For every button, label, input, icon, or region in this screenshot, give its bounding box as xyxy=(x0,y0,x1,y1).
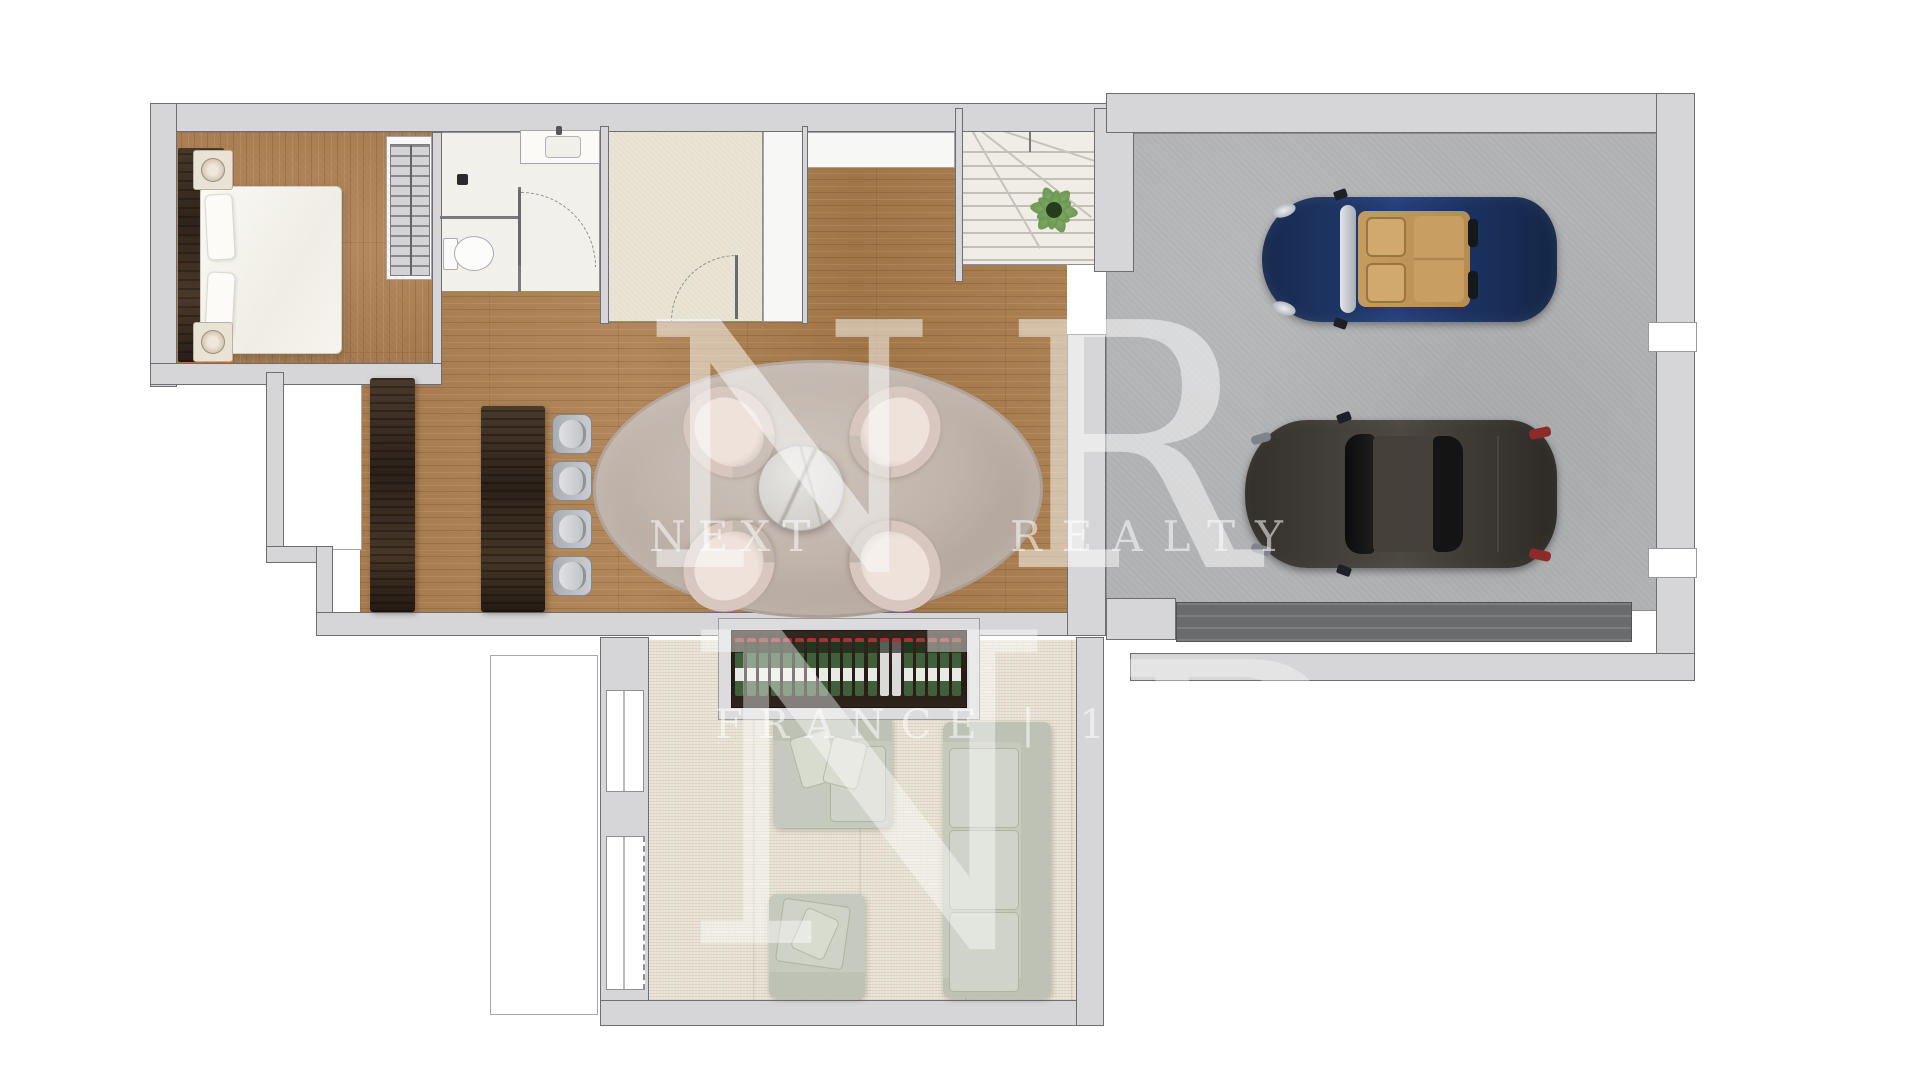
wine-bottle xyxy=(807,638,816,696)
armchair xyxy=(769,894,865,998)
wine-bottle xyxy=(759,638,768,696)
wall-left-upper xyxy=(150,103,177,387)
wall-hall-stairs xyxy=(955,108,963,282)
wall-main-bottom xyxy=(316,612,1107,636)
wine-bottle xyxy=(831,638,840,696)
terrace-bottom xyxy=(490,655,598,1015)
sofa-armrest xyxy=(943,722,1051,742)
wine-bottle xyxy=(952,638,961,696)
wine-bottle xyxy=(892,638,901,696)
sofa-back xyxy=(1021,722,1051,998)
wine-bottle xyxy=(735,638,744,696)
wine-bottle xyxy=(928,638,937,696)
convertible-car xyxy=(1262,197,1557,322)
wine-bottle xyxy=(916,638,925,696)
three-seat-sofa xyxy=(943,722,1051,998)
pillow xyxy=(204,193,235,260)
dining-table xyxy=(758,445,844,531)
roof xyxy=(1373,436,1435,552)
wine-bottle xyxy=(880,638,889,696)
wall-bath-dressing xyxy=(600,126,609,324)
living-window xyxy=(606,690,644,792)
garage-window-notch xyxy=(1648,548,1697,578)
roll-bar xyxy=(1468,219,1478,247)
sofa-seat-cushion xyxy=(949,912,1019,992)
garage-wall-bottom xyxy=(1130,653,1695,681)
open-cockpit xyxy=(1358,211,1470,307)
wine-bottle xyxy=(771,638,780,696)
garage-wall-top xyxy=(1106,93,1695,133)
windshield xyxy=(1340,205,1356,313)
bar-stool xyxy=(552,461,592,501)
sofa-seat-cushion xyxy=(949,748,1019,828)
garage-wall-stub xyxy=(1106,598,1176,640)
garage-window-notch xyxy=(1648,322,1697,352)
wine-bottle xyxy=(855,638,864,696)
wardrobe-rail xyxy=(390,144,430,276)
wine-bottle xyxy=(819,638,828,696)
bath-partition xyxy=(440,216,520,219)
wine-bottle xyxy=(940,638,949,696)
wall-right-lower xyxy=(1067,334,1106,636)
rear-bench xyxy=(1414,216,1464,302)
kitchen-island xyxy=(481,406,545,612)
shower-drain xyxy=(457,174,468,185)
car-seat xyxy=(1366,217,1406,257)
roll-bar xyxy=(1468,271,1478,299)
toilet xyxy=(454,236,494,271)
wall-closet-hall xyxy=(802,126,808,324)
bar-stool xyxy=(552,509,592,549)
hall-landing xyxy=(807,132,955,168)
living-wall-right xyxy=(1076,637,1104,1026)
loveseat xyxy=(773,715,892,828)
bar-stool xyxy=(552,556,592,596)
wall-bed-bath xyxy=(432,132,442,364)
floor-plan: N R NEXT REALTY N R FRANCE | 1994 xyxy=(0,0,1920,1080)
wine-bottle xyxy=(868,638,877,696)
garage-door xyxy=(1176,602,1632,642)
bar-stool xyxy=(552,414,592,454)
sofa-seat-cushion xyxy=(949,830,1019,910)
wall-top xyxy=(150,103,1107,132)
wardrobe-rail-bar xyxy=(410,145,412,275)
stair-tread xyxy=(963,246,1098,248)
living-wall-bottom xyxy=(600,1000,1104,1026)
front-glass xyxy=(1345,434,1375,554)
stair-tread xyxy=(963,259,1098,261)
wall-left-mid xyxy=(266,372,284,562)
stair-tread xyxy=(963,165,1098,167)
bedside-lamp xyxy=(201,330,225,354)
rear-glass xyxy=(1433,436,1463,552)
car-seat xyxy=(1366,263,1406,303)
plant-pot xyxy=(1046,202,1062,218)
living-window-dashed xyxy=(606,836,645,990)
closet-strip xyxy=(763,128,807,322)
wine-bottle xyxy=(747,638,756,696)
bedside-lamp xyxy=(201,158,225,182)
wine-bottle xyxy=(904,638,913,696)
sideboard xyxy=(370,378,415,612)
terrace-left xyxy=(278,382,362,550)
wine-bottle xyxy=(795,638,804,696)
wine-bottle xyxy=(783,638,792,696)
sink-basin xyxy=(545,136,581,158)
potted-plant xyxy=(1022,178,1086,242)
armchair-back xyxy=(769,972,865,998)
trunk-line xyxy=(1497,436,1499,552)
faucet xyxy=(556,126,562,135)
wine-bottle xyxy=(843,638,852,696)
coupe-car xyxy=(1245,420,1557,568)
